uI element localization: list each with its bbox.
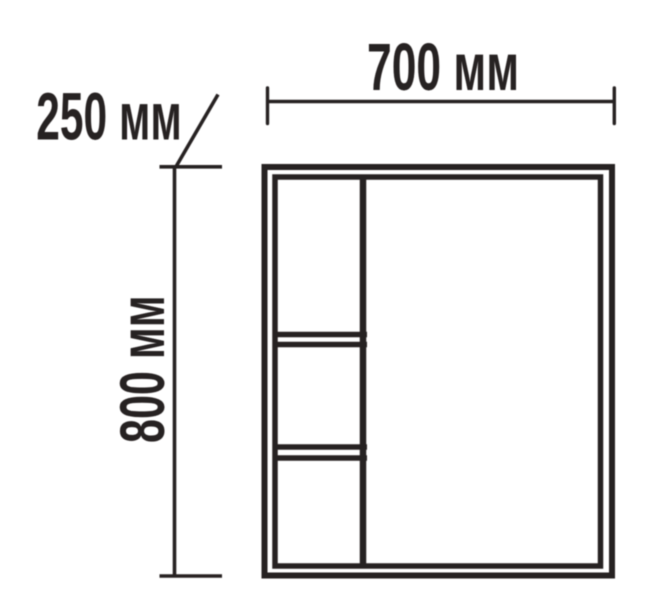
svg-text:250 мм: 250 мм bbox=[36, 78, 181, 153]
svg-text:800 мм: 800 мм bbox=[108, 295, 178, 443]
svg-text:700 мм: 700 мм bbox=[367, 31, 519, 105]
